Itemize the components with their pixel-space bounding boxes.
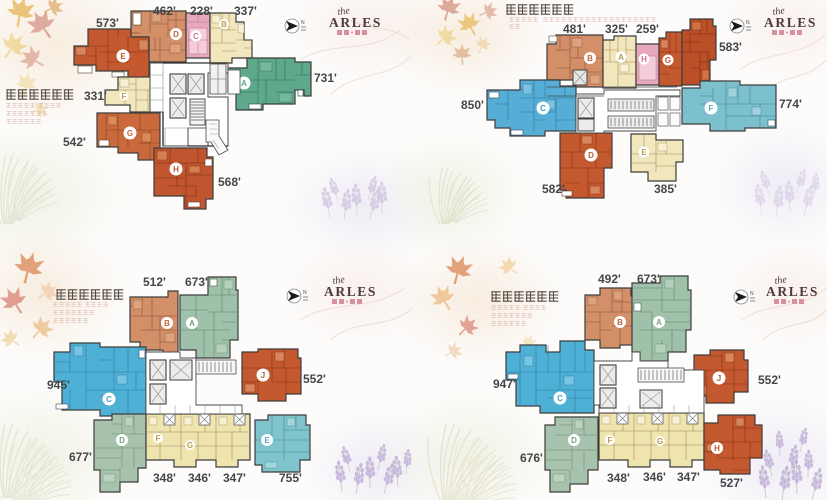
svg-text:G: G [657, 437, 663, 446]
svg-text:ARLES: ARLES [764, 15, 817, 30]
svg-text:E: E [641, 148, 647, 157]
svg-text:G: G [187, 441, 193, 450]
svg-text:N: N [303, 290, 307, 296]
svg-text:673': 673' [185, 275, 208, 289]
svg-text:E: E [264, 436, 270, 445]
svg-text:573': 573' [96, 16, 119, 30]
svg-text:D: D [173, 30, 179, 39]
svg-text:H: H [173, 165, 179, 174]
svg-text:A: A [189, 319, 195, 328]
svg-text:347': 347' [677, 470, 700, 484]
svg-text:D: D [119, 436, 125, 445]
svg-text:512': 512' [143, 275, 166, 289]
svg-text:552': 552' [758, 373, 781, 387]
svg-text:552': 552' [303, 372, 326, 386]
svg-text:527': 527' [720, 476, 743, 490]
svg-text:731': 731' [314, 71, 337, 85]
svg-text:947': 947' [493, 377, 516, 391]
svg-text:C: C [106, 395, 112, 404]
svg-text:N: N [746, 20, 750, 26]
svg-text:673': 673' [637, 272, 660, 286]
svg-text:A: A [241, 79, 247, 88]
svg-text:F: F [156, 434, 161, 443]
svg-text:F: F [608, 436, 613, 445]
svg-text:ARLES: ARLES [324, 284, 377, 299]
svg-text:B: B [587, 54, 593, 63]
svg-text:C: C [193, 32, 199, 41]
svg-text:568': 568' [218, 175, 241, 189]
svg-text:346': 346' [188, 471, 211, 485]
svg-text:462': 462' [153, 4, 176, 18]
svg-text:259': 259' [636, 22, 659, 36]
svg-text:583': 583' [719, 40, 742, 54]
svg-text:542': 542' [63, 135, 86, 149]
svg-text:B: B [617, 318, 623, 327]
svg-text:G: G [665, 56, 671, 65]
svg-text:C: C [557, 394, 563, 403]
svg-text:H: H [714, 444, 720, 453]
svg-text:346': 346' [643, 470, 666, 484]
svg-text:ARLES: ARLES [329, 15, 382, 30]
svg-text:ARLES: ARLES [766, 284, 819, 299]
svg-text:F: F [122, 92, 127, 101]
svg-text:G: G [127, 129, 133, 138]
svg-text:774': 774' [779, 97, 802, 111]
svg-text:677': 677' [69, 450, 92, 464]
svg-text:325': 325' [605, 22, 628, 36]
svg-text:N: N [750, 291, 754, 297]
svg-text:481': 481' [563, 22, 586, 36]
svg-text:B: B [221, 20, 227, 29]
svg-text:228': 228' [190, 4, 213, 18]
svg-text:331': 331' [84, 89, 107, 103]
svg-text:D: D [588, 151, 594, 160]
svg-text:347': 347' [223, 471, 246, 485]
svg-text:B: B [164, 319, 170, 328]
svg-text:755': 755' [279, 471, 302, 485]
svg-text:945': 945' [47, 378, 70, 392]
svg-text:A: A [618, 53, 624, 62]
svg-text:J: J [717, 374, 721, 383]
svg-text:348': 348' [153, 471, 176, 485]
svg-text:676': 676' [520, 451, 543, 465]
svg-text:492': 492' [598, 272, 621, 286]
svg-text:348': 348' [607, 471, 630, 485]
svg-text:F: F [709, 104, 714, 113]
svg-text:C: C [540, 104, 546, 113]
svg-text:582': 582' [542, 182, 565, 196]
svg-text:850': 850' [461, 98, 484, 112]
svg-text:385': 385' [654, 182, 677, 196]
svg-text:D: D [571, 436, 577, 445]
svg-text:337': 337' [234, 4, 257, 18]
svg-text:H: H [641, 55, 647, 64]
svg-text:N: N [301, 20, 305, 26]
svg-text:A: A [656, 318, 662, 327]
svg-text:J: J [261, 371, 265, 380]
svg-text:E: E [120, 52, 126, 61]
